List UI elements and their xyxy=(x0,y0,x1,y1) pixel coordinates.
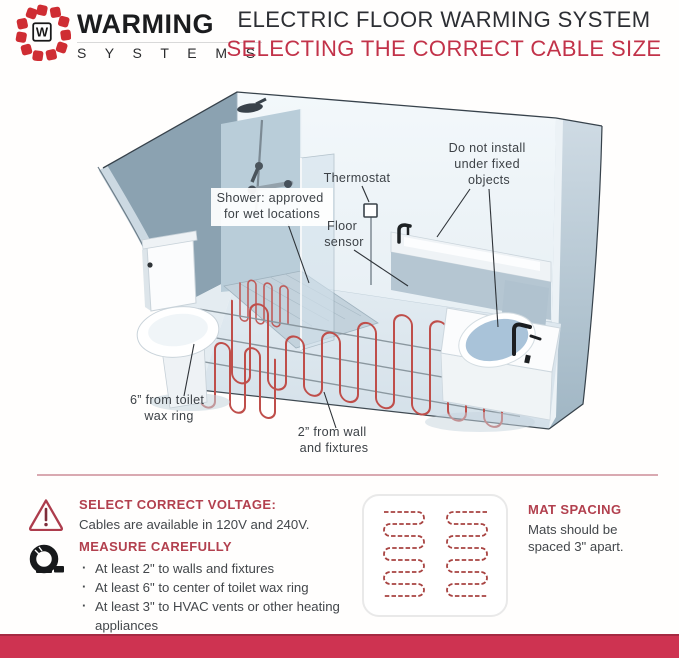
diagram-area: Shower: approved for wet locations Therm… xyxy=(0,72,679,474)
heating-mat-pattern-icon xyxy=(441,507,493,605)
mat-heading: MAT SPACING xyxy=(528,502,658,518)
tip-mat-spacing: MAT SPACING Mats should be spaced 3" apa… xyxy=(528,502,658,556)
measure-bullet: At least 6" to center of toilet wax ring xyxy=(95,578,357,597)
tips-section: SELECT CORRECT VOLTAGE: Cables are avail… xyxy=(0,474,679,658)
brand-monogram: W xyxy=(36,25,49,40)
bathroom-cutaway-diagram: Shower: approved for wet locations Therm… xyxy=(0,72,679,474)
measure-heading: MEASURE CAREFULLY xyxy=(79,539,358,555)
voltage-body: Cables are available in 120V and 240V. xyxy=(79,516,358,534)
tip-voltage: SELECT CORRECT VOLTAGE: Cables are avail… xyxy=(28,497,358,533)
warning-triangle-icon xyxy=(28,497,64,531)
label-thermostat: Thermostat xyxy=(324,171,391,185)
page-subtitle: SELECTING THE CORRECT CABLE SIZE xyxy=(226,36,662,61)
measure-bullet: At least 3" to HVAC vents or other heati… xyxy=(95,597,357,635)
infographic-page: W WARMING S Y S T E M S ELECTRIC FLOOR W… xyxy=(0,0,679,658)
heating-mat-pattern-icon xyxy=(378,507,430,605)
section-divider xyxy=(37,474,658,476)
mat-spacing-card xyxy=(362,494,508,617)
label-wall-clearance: 2” from wall and fixtures xyxy=(298,425,371,455)
footer-accent-bar xyxy=(0,634,679,658)
measure-bullets: At least 2" to walls and fixtures At lea… xyxy=(79,559,357,636)
mat-body: Mats should be spaced 3" apart. xyxy=(528,521,642,557)
thermostat-box xyxy=(364,204,377,217)
warming-systems-logo-icon: W xyxy=(13,3,71,61)
header: W WARMING S Y S T E M S ELECTRIC FLOOR W… xyxy=(0,0,679,72)
header-titles: ELECTRIC FLOOR WARMING SYSTEM SELECTING … xyxy=(226,7,662,62)
page-title: ELECTRIC FLOOR WARMING SYSTEM xyxy=(226,7,662,32)
measure-bullet: At least 2" to walls and fixtures xyxy=(95,559,357,578)
voltage-heading: SELECT CORRECT VOLTAGE: xyxy=(79,497,358,513)
tape-measure-icon xyxy=(26,541,68,579)
tip-measure: MEASURE CAREFULLY At least 2" to walls a… xyxy=(28,539,358,635)
